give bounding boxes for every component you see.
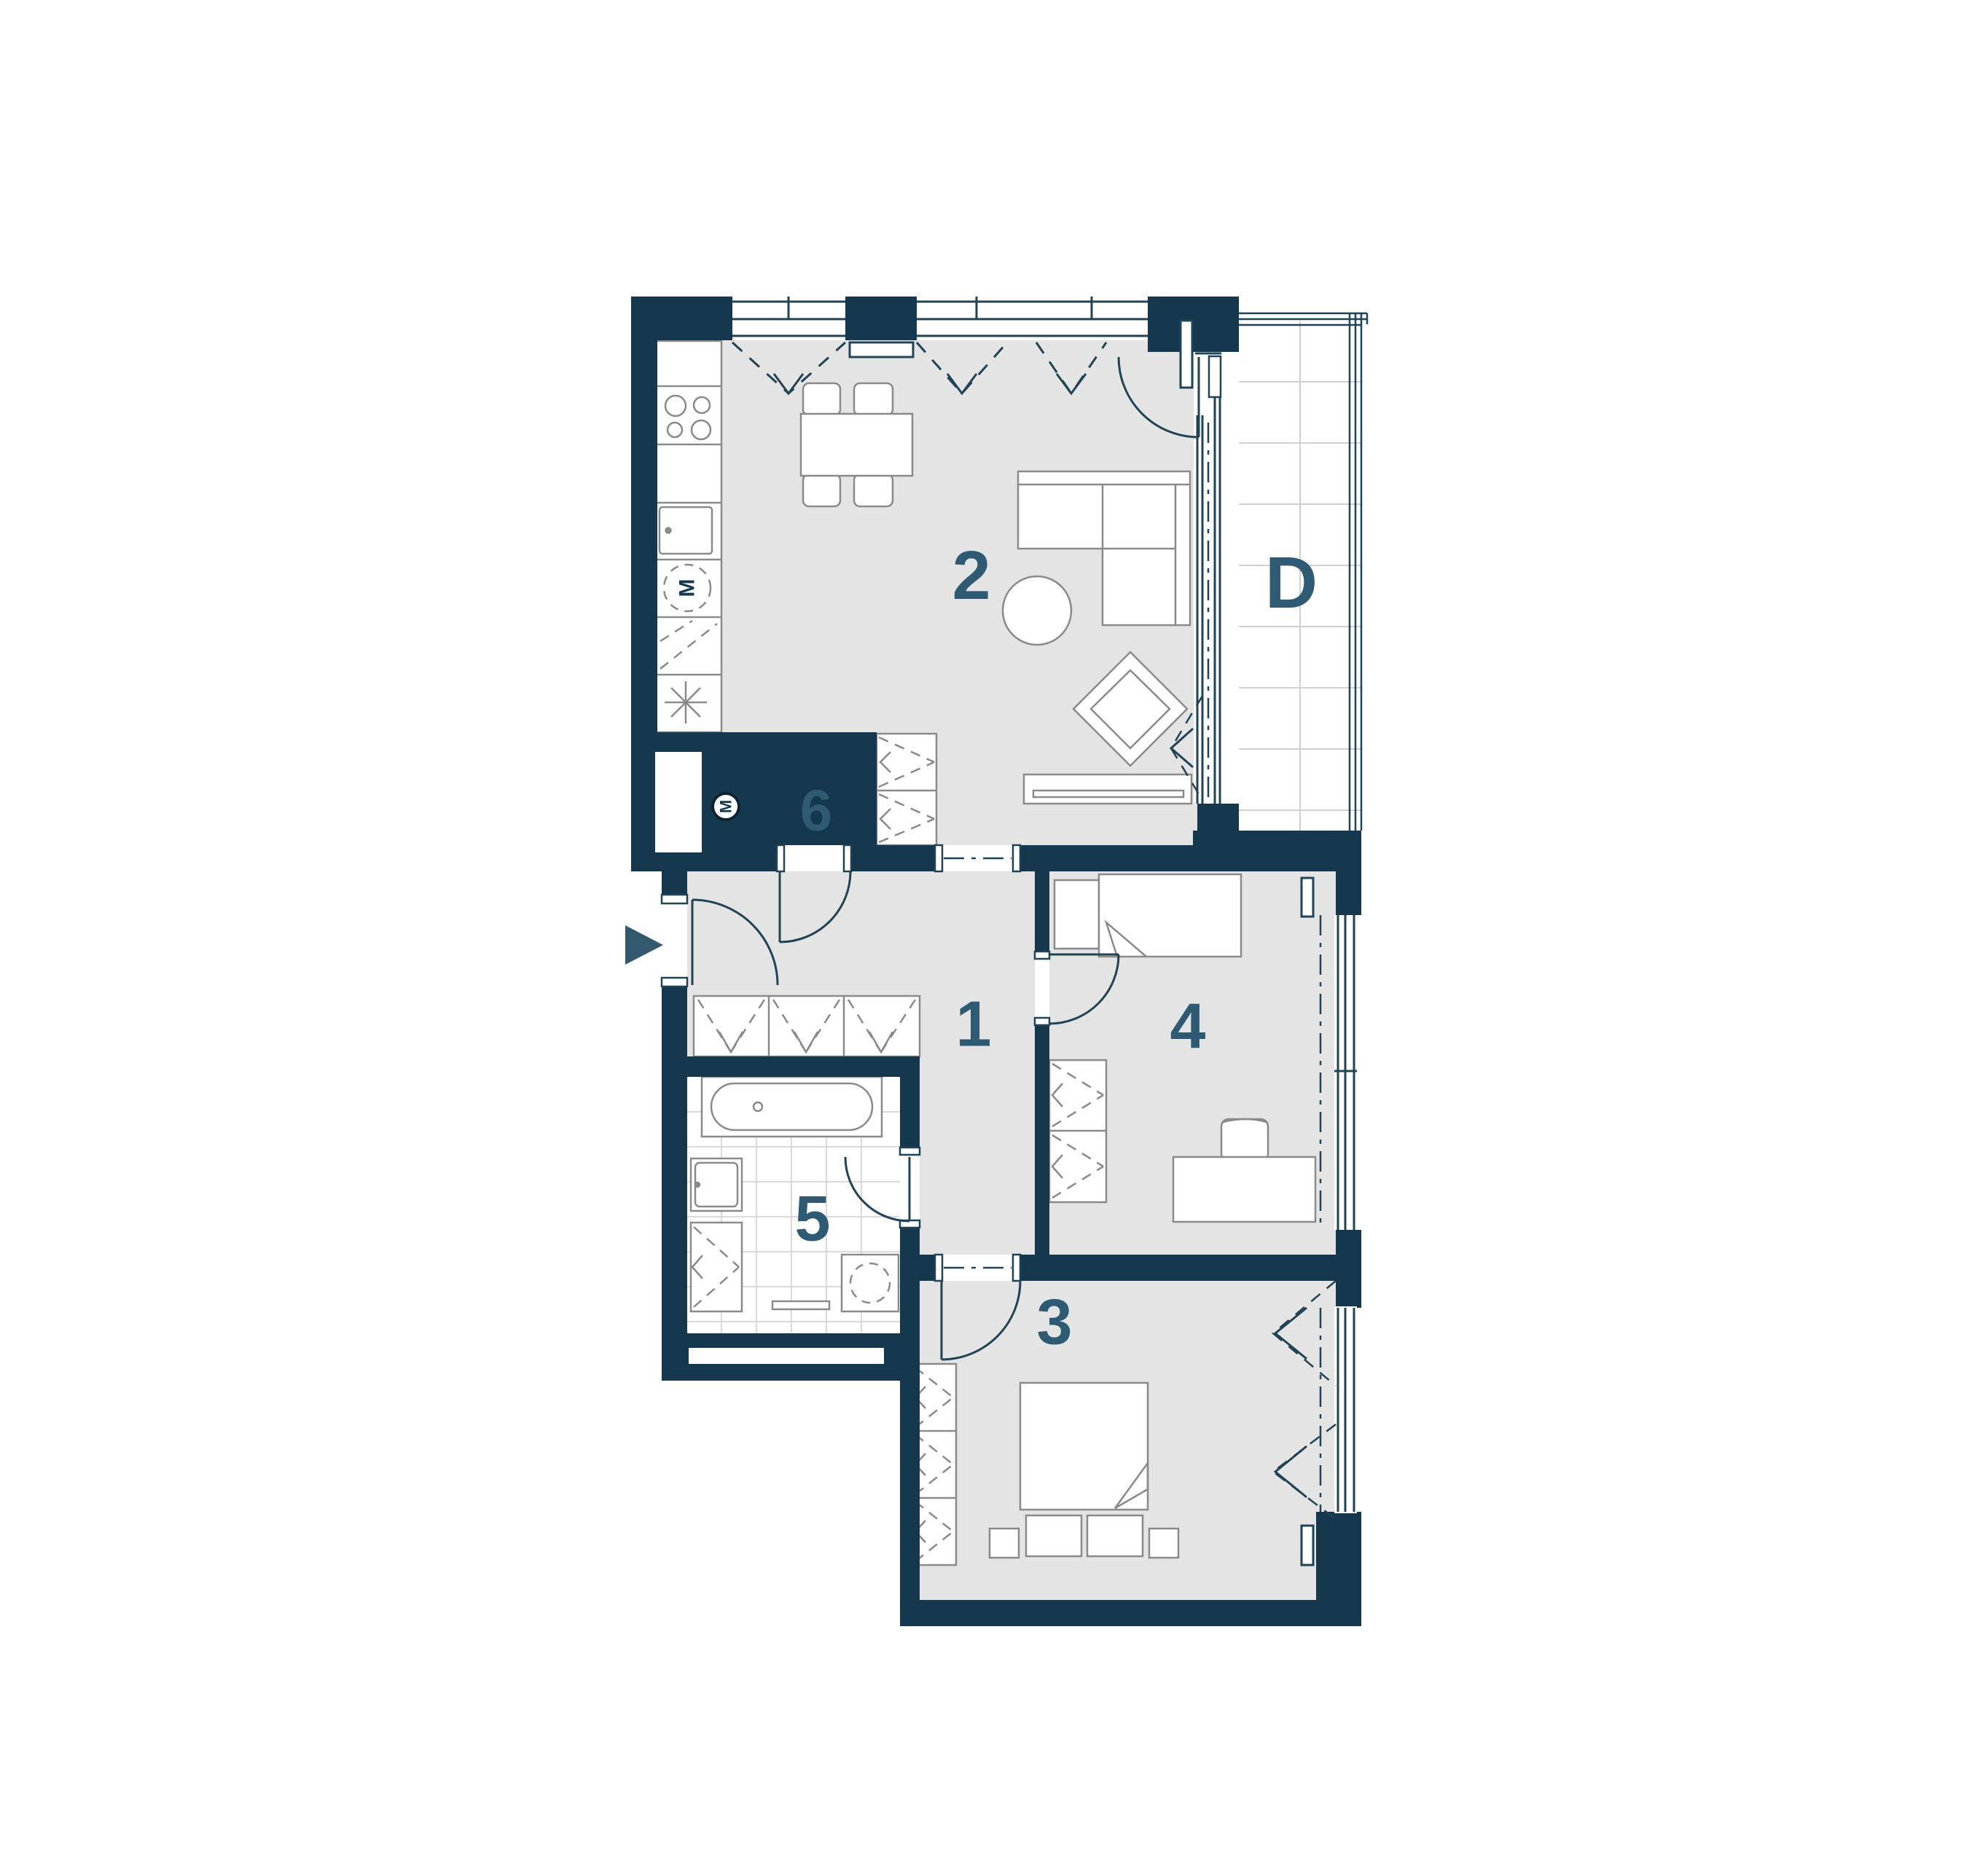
shaft-niche xyxy=(655,752,702,852)
hall-floor-corridor xyxy=(920,1056,1035,1255)
bed-pillow xyxy=(1087,1515,1143,1556)
radiator xyxy=(1302,1526,1313,1565)
towel-radiator xyxy=(772,1301,829,1309)
wall-top-mid-pier xyxy=(845,297,917,340)
single-bed xyxy=(1099,874,1241,957)
washer-m-letter: M xyxy=(676,579,700,597)
label-living-kitchen: 2 xyxy=(952,537,991,614)
wall-left xyxy=(631,297,657,732)
radiator xyxy=(1181,321,1192,388)
hall-living-opening xyxy=(935,845,1020,871)
furniture-bedroom-large xyxy=(912,1364,1178,1565)
bedroom-small-wardrobe xyxy=(1049,1060,1106,1202)
kitchen-sink-icon xyxy=(660,507,712,554)
wall-bottom xyxy=(900,1600,1361,1626)
wall-right-pier-2 xyxy=(1336,1230,1361,1308)
bathroom-washing-machine-icon xyxy=(842,1255,899,1311)
label-bedroom-large: 3 xyxy=(1037,1286,1073,1358)
entrance-arrow-icon xyxy=(625,925,663,965)
bathroom-cabinet xyxy=(691,1223,742,1311)
desk xyxy=(1173,1157,1315,1222)
furniture-hall xyxy=(694,996,920,1056)
fan-m-letter: M xyxy=(717,800,735,813)
label-hall: 1 xyxy=(956,988,992,1060)
floor-plan-page: M M 2 D 6 1 4 5 3 xyxy=(0,0,1988,1871)
hall-wardrobe xyxy=(694,996,920,1056)
label-bathroom: 5 xyxy=(795,1182,831,1255)
nightstand xyxy=(990,1529,1019,1558)
bed-pillow xyxy=(1026,1515,1081,1556)
bathroom-sink-icon xyxy=(691,1158,742,1211)
radiator xyxy=(1302,878,1313,917)
nightstand xyxy=(1149,1529,1178,1558)
wall-living-se-corner xyxy=(1197,804,1239,871)
coffee-table xyxy=(1003,576,1071,645)
wall-right-pier-3 xyxy=(1316,1512,1361,1626)
tv-bench xyxy=(1024,774,1191,804)
room-floors xyxy=(656,321,1361,1603)
chair xyxy=(854,383,893,415)
chair xyxy=(803,474,840,506)
bedside-cabinet xyxy=(1054,880,1099,949)
label-balcony: D xyxy=(1265,542,1318,624)
desk-chair xyxy=(1221,1119,1268,1161)
bathtub-icon xyxy=(702,1077,882,1137)
wall-hall-bedroom-divider xyxy=(1035,871,1049,1255)
floor-plan: M M 2 D 6 1 4 5 3 xyxy=(0,0,1988,1871)
balcony-door-leaf xyxy=(1209,356,1221,397)
chair xyxy=(854,474,893,506)
wall-right-pier-1 xyxy=(1336,871,1361,915)
shaft-niche-lower xyxy=(689,1348,884,1364)
chair xyxy=(803,383,840,415)
label-bedroom-small: 4 xyxy=(1170,990,1206,1062)
radiator xyxy=(850,342,913,357)
label-wc: 6 xyxy=(800,778,833,843)
wall-bedroom-large-left xyxy=(900,1381,920,1626)
living-wardrobe xyxy=(877,734,936,845)
wall-bathroom-top xyxy=(687,1056,900,1077)
